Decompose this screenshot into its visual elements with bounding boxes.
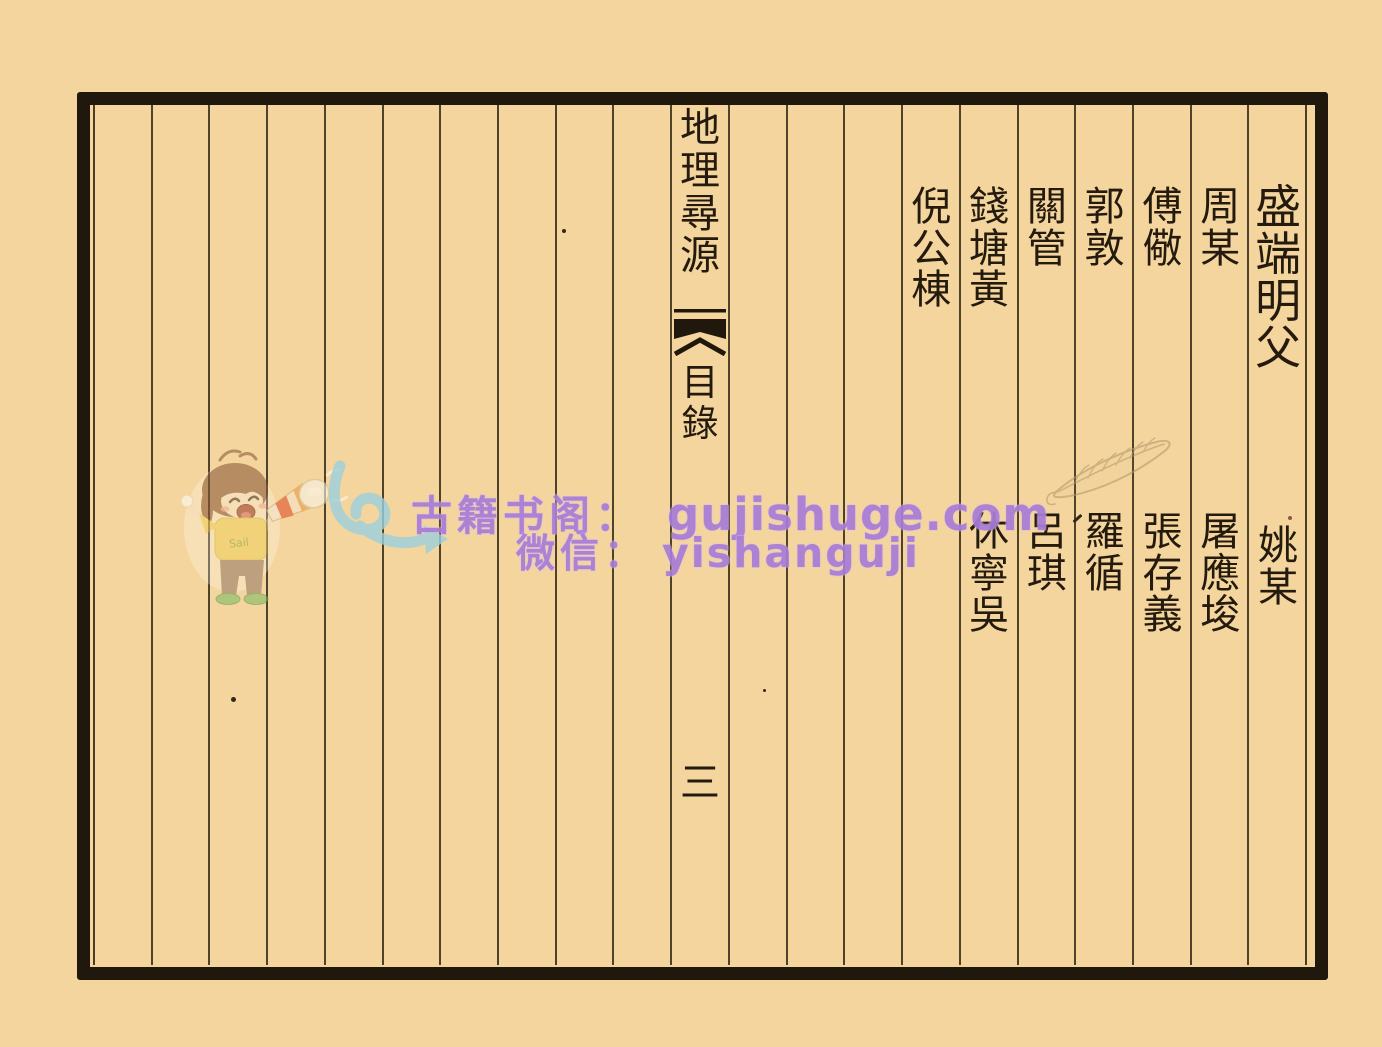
- column-bottom-name: 張存義: [1134, 512, 1192, 637]
- column-top-name: 關管: [1018, 187, 1076, 270]
- page-number: 三: [671, 750, 729, 808]
- ink-speckle: [763, 689, 766, 692]
- column-top-name: 傅儆: [1134, 187, 1192, 270]
- ink-speckle: [1288, 516, 1292, 520]
- spine-book-title: 地理尋源: [671, 107, 729, 278]
- ink-speckle: [231, 697, 236, 702]
- girl-figure: Sail: [181, 451, 280, 605]
- column-top-name: 周某: [1191, 187, 1249, 270]
- feather-sketch-watermark: [1040, 420, 1190, 515]
- column-top-name: 盛端明父: [1249, 184, 1307, 372]
- fishtail-ornament: [672, 309, 728, 363]
- ruled-column: [95, 105, 153, 965]
- ink-speckle: [562, 229, 566, 233]
- shirt-scribble-text: Sail: [228, 536, 249, 551]
- column-bottom-name: 屠應埈: [1191, 512, 1249, 637]
- column-bottom-name: 姚某: [1249, 526, 1307, 609]
- column-top-name: 錢塘黃: [960, 187, 1018, 312]
- column-bottom-name: 羅循: [1076, 512, 1134, 595]
- watermark-wechat-line: 微信： yishanguji: [516, 523, 920, 579]
- spine-section-label: 目錄: [671, 362, 729, 445]
- column-top-name: 倪公棟: [902, 187, 960, 312]
- watermark-wechat-label: 微信：: [516, 523, 648, 579]
- watermark-wechat-id: yishanguji: [662, 529, 920, 577]
- scanned-book-page: 地理尋源 目錄 三 盛端明父姚某周某屠應埈傅儆張存義郭敦羅循關管呂琪錢塘黃休寧吳…: [0, 0, 1382, 1047]
- column-top-name: 郭敦: [1076, 187, 1134, 270]
